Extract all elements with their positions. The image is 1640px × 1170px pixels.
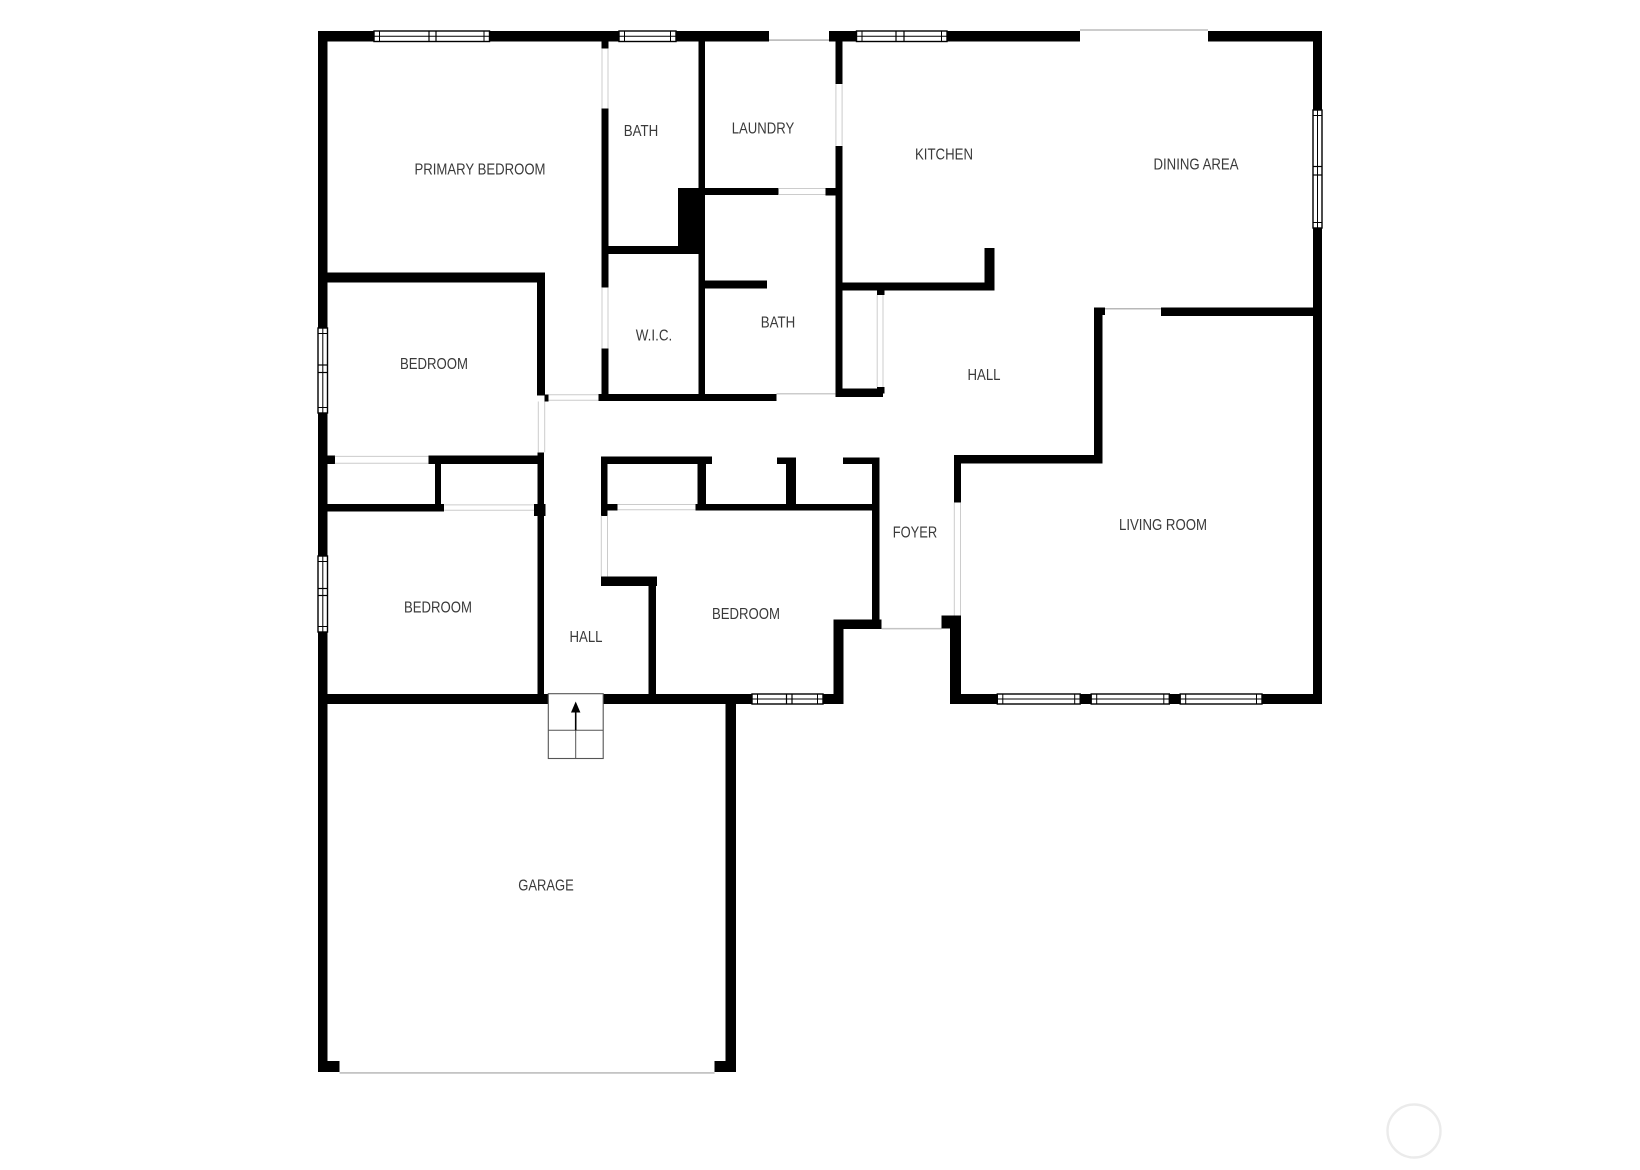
svg-text:HALL: HALL <box>570 629 603 646</box>
svg-text:DINING AREA: DINING AREA <box>1154 157 1240 174</box>
svg-text:BEDROOM: BEDROOM <box>712 606 780 623</box>
svg-text:PRIMARY BEDROOM: PRIMARY BEDROOM <box>415 162 546 179</box>
svg-text:KITCHEN: KITCHEN <box>915 147 973 164</box>
svg-text:BEDROOM: BEDROOM <box>404 600 472 617</box>
svg-text:LAUNDRY: LAUNDRY <box>732 121 795 138</box>
svg-text:HALL: HALL <box>968 367 1001 384</box>
svg-text:GARAGE: GARAGE <box>518 878 574 895</box>
svg-text:W.I.C.: W.I.C. <box>636 328 673 345</box>
svg-text:BATH: BATH <box>761 315 796 332</box>
svg-text:BEDROOM: BEDROOM <box>400 356 468 373</box>
svg-text:FOYER: FOYER <box>893 525 938 542</box>
svg-text:BATH: BATH <box>624 123 659 140</box>
svg-text:LIVING ROOM: LIVING ROOM <box>1119 517 1207 534</box>
